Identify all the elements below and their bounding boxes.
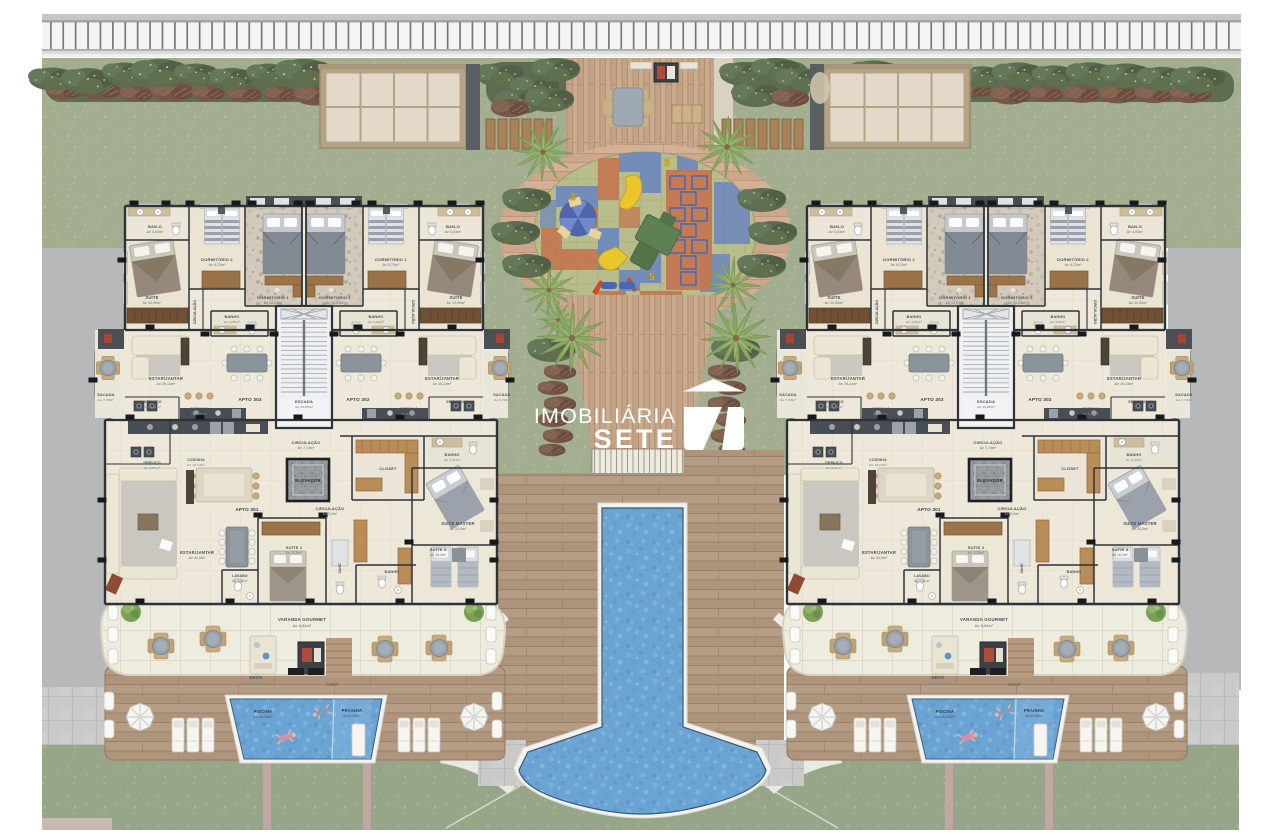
svg-text:PRAINHA: PRAINHA <box>342 708 362 713</box>
svg-text:Ae 4,35m²: Ae 4,35m² <box>368 320 384 324</box>
svg-text:SERVIÇO: SERVIÇO <box>446 400 464 404</box>
svg-text:SERVIÇO: SERVIÇO <box>143 461 161 465</box>
svg-text:CIRCULAÇÃO: CIRCULAÇÃO <box>292 440 321 445</box>
svg-text:Ae 8,64m²: Ae 8,64m² <box>191 412 207 416</box>
svg-text:PISCINA: PISCINA <box>254 709 272 714</box>
svg-text:Ae 25,14m²: Ae 25,14m² <box>157 382 176 386</box>
svg-text:3: 3 <box>664 158 670 169</box>
svg-text:DORMITÓRIO 1: DORMITÓRIO 1 <box>257 295 289 300</box>
svg-text:Ae 12,9m²: Ae 12,9m² <box>286 551 303 555</box>
svg-text:APTO 301: APTO 301 <box>235 507 258 512</box>
svg-text:CIRCULAÇÃO: CIRCULAÇÃO <box>411 300 416 324</box>
svg-text:BANHO: BANHO <box>445 453 460 457</box>
svg-text:SERVIÇO: SERVIÇO <box>144 400 162 404</box>
svg-text:Ae 2,16m²: Ae 2,16m² <box>232 579 248 583</box>
svg-text:Ae 4,35m²: Ae 4,35m² <box>224 320 240 324</box>
svg-text:Ae 4,03m²: Ae 4,03m² <box>147 230 164 234</box>
svg-text:COZINHA: COZINHA <box>400 407 418 411</box>
svg-text:ELEVADOR: ELEVADOR <box>295 478 321 483</box>
svg-text:SUÍTE 3: SUÍTE 3 <box>430 547 447 552</box>
svg-text:5: 5 <box>649 272 655 283</box>
svg-text:Ae 9,72m²: Ae 9,72m² <box>209 263 226 267</box>
svg-text:SUÍTE: SUÍTE <box>449 295 462 300</box>
svg-text:Ae 7,74m²: Ae 7,74m² <box>298 446 315 450</box>
svg-text:CIRCULAÇÃO: CIRCULAÇÃO <box>192 300 197 324</box>
svg-text:ESCADA: ESCADA <box>295 399 313 404</box>
svg-text:COZINHA: COZINHA <box>190 407 208 411</box>
svg-text:Ae 2,01m²: Ae 2,01m² <box>145 405 161 409</box>
svg-text:VARANDA GOURMET: VARANDA GOURMET <box>278 617 326 622</box>
svg-text:CLOSET: CLOSET <box>379 466 397 471</box>
svg-text:Ae 12,90m²: Ae 12,90m² <box>447 301 466 305</box>
svg-text:Ae 12,85m²: Ae 12,85m² <box>295 405 313 409</box>
svg-text:DORMITÓRIO 2: DORMITÓRIO 2 <box>375 257 407 262</box>
svg-text:Ae 10,14m²: Ae 10,14m² <box>187 463 205 467</box>
svg-text:SUÍTE 2: SUÍTE 2 <box>286 545 303 550</box>
svg-text:COZINHA: COZINHA <box>187 458 205 462</box>
svg-text:Ae 5,2m²: Ae 5,2m² <box>323 512 338 516</box>
svg-text:ESTAR/JANTAR: ESTAR/JANTAR <box>149 376 183 381</box>
svg-text:Ae 22,5m²: Ae 22,5m² <box>450 527 467 531</box>
svg-text:Ae 8,84m²: Ae 8,84m² <box>293 624 312 628</box>
svg-text:SUÍTE: SUÍTE <box>145 295 158 300</box>
svg-text:ESTAR/JANTAR: ESTAR/JANTAR <box>180 550 214 555</box>
svg-text:BAN-O: BAN-O <box>446 224 460 229</box>
svg-text:CIRCULAÇÃO: CIRCULAÇÃO <box>316 506 345 511</box>
svg-text:Ae 9,72m²: Ae 9,72m² <box>383 263 400 267</box>
svg-text:DECK: DECK <box>249 675 263 680</box>
svg-text:Ae 3,01m²: Ae 3,01m² <box>144 466 160 470</box>
svg-text:Ae 7,72m²: Ae 7,72m² <box>98 398 114 402</box>
svg-text:APTO 302: APTO 302 <box>346 397 369 402</box>
svg-text:SETE: SETE <box>594 424 677 454</box>
svg-text:SANIT.: SANIT. <box>338 562 342 573</box>
svg-text:Ae 25,14m²: Ae 25,14m² <box>433 382 452 386</box>
svg-text:Ae 7,72m²: Ae 7,72m² <box>494 398 510 402</box>
svg-text:DORMITÓRIO 1: DORMITÓRIO 1 <box>319 295 351 300</box>
svg-text:BANHO: BANHO <box>369 315 384 319</box>
svg-text:LAVABO: LAVABO <box>232 574 248 578</box>
svg-text:Ae 13,04m²: Ae 13,04m² <box>264 301 283 305</box>
svg-text:BANHO: BANHO <box>225 315 240 319</box>
svg-text:Ae 8,64m²: Ae 8,64m² <box>401 412 417 416</box>
svg-text:10000: 10000 <box>326 682 339 687</box>
svg-text:Ae 6,25m²: Ae 6,25m² <box>343 714 361 718</box>
svg-text:SUÍTE MASTER: SUÍTE MASTER <box>441 521 475 526</box>
svg-text:APTO 303: APTO 303 <box>238 397 261 402</box>
svg-text:SACADA: SACADA <box>493 393 511 397</box>
svg-text:ESTAR/JANTAR: ESTAR/JANTAR <box>425 376 459 381</box>
svg-text:Ae 4,03m²: Ae 4,03m² <box>445 230 462 234</box>
svg-text:BANHO: BANHO <box>385 570 400 574</box>
svg-text:Ae 27,46m²: Ae 27,46m² <box>246 682 268 686</box>
svg-text:Ae 42,9m²: Ae 42,9m² <box>189 556 206 560</box>
svg-text:Ae 16,2m²: Ae 16,2m² <box>430 553 447 557</box>
svg-text:DORMITÓRIO 2: DORMITÓRIO 2 <box>201 257 233 262</box>
svg-text:Ae 18,53m²: Ae 18,53m² <box>253 715 274 719</box>
svg-text:Ae 13,04m²: Ae 13,04m² <box>326 301 345 305</box>
svg-text:Ae 12,90m²: Ae 12,90m² <box>143 301 162 305</box>
svg-text:BAN-O: BAN-O <box>148 224 162 229</box>
svg-text:Ae 4,41m²: Ae 4,41m² <box>444 458 460 462</box>
svg-text:SACADA: SACADA <box>97 393 115 397</box>
svg-text:2: 2 <box>570 192 576 203</box>
